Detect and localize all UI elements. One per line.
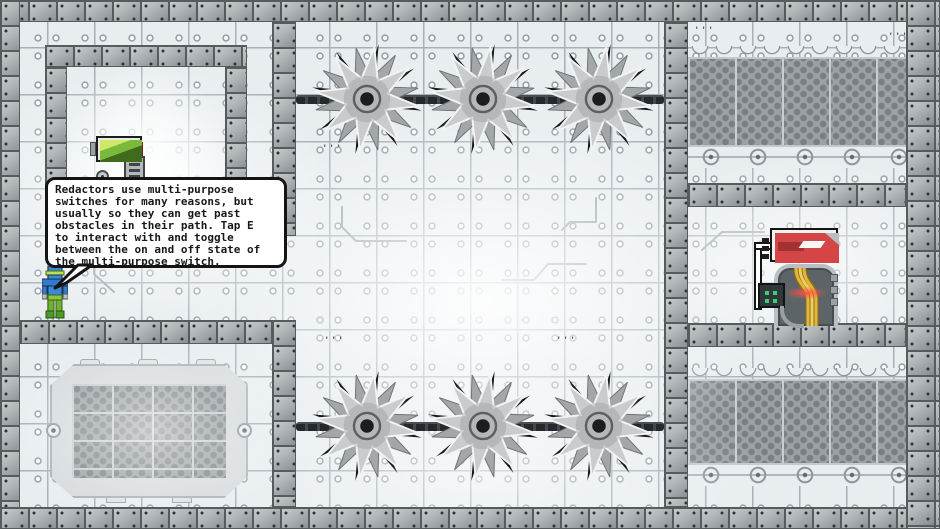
pipe-connector [762,238,769,243]
tick-marks: ''' [694,26,715,36]
panel-frame [50,364,248,498]
saw-blade-1 [309,41,425,157]
circuit-line [500,250,590,290]
circuit-line [560,196,630,256]
circuit-line [340,205,410,255]
border-bottom [0,507,940,529]
speech-bubble-tail [52,263,108,291]
border-left [0,0,20,529]
pipe-connector [762,246,769,251]
red-glow-band [776,284,836,302]
mesh-panel-bottom-right [688,379,906,465]
tick-marks: ''' [324,336,345,346]
panel-mesh [72,384,226,478]
clamp-tooth [830,298,838,306]
warning-sign-screen [775,233,839,263]
led-icon [773,291,777,295]
game-viewport[interactable]: ''' ''' ''' ''' ''' [0,0,940,529]
wall-right-upper [688,183,906,207]
wall-machine[interactable] [748,226,840,326]
vent-panel [50,364,248,498]
speech-bubble: Redactors use multi-purpose switches for… [45,177,287,268]
warning-sign [770,228,838,262]
clamp-tooth [830,286,838,294]
vent-slot [129,169,140,172]
tick-marks: ''' [556,336,577,346]
led-icon [765,299,769,303]
wall-vertical-right [664,22,688,507]
bolt-row [688,147,906,168]
mesh-panel-top-right [688,57,906,147]
bolt-row [688,465,906,486]
saw-blade-5 [425,368,541,484]
pipe-connector [762,254,769,259]
alcove-frame-top [45,45,247,67]
vent-slot [129,163,140,166]
switch-screen [96,136,142,162]
led-icon [773,299,777,303]
saw-blade-6 [541,368,657,484]
saw-blade-3 [541,41,657,157]
border-right [906,0,940,529]
border-top [0,0,940,22]
sign-corner [825,233,839,245]
bolt-icon [46,423,61,438]
led-icon [765,291,769,295]
wall-floor-left [20,320,272,344]
saw-blade-2 [425,41,541,157]
saw-blade-4 [309,368,425,484]
speech-bubble-text: Redactors use multi-purpose switches for… [48,180,260,268]
clamp-tooth [830,274,838,282]
control-box[interactable] [758,283,785,308]
sign-slash [799,241,826,248]
bolt-icon [237,423,252,438]
wall-vertical-left-lower [272,320,296,507]
